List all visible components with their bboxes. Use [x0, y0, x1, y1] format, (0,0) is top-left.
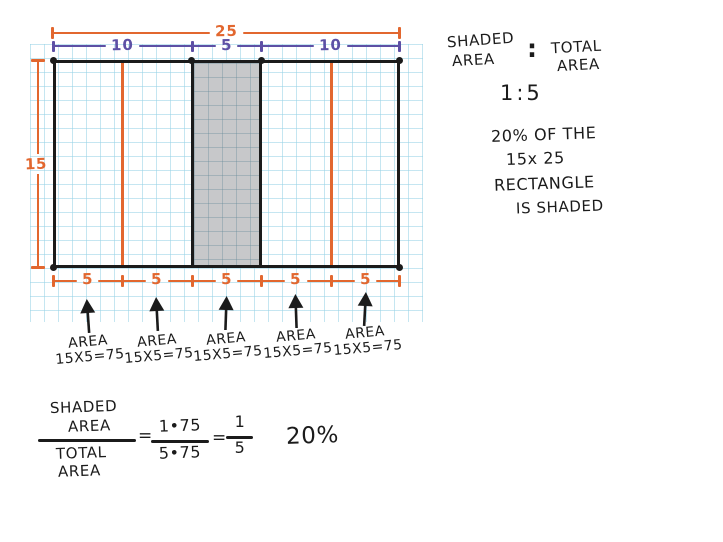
- dimension-label-10: 10: [106, 37, 139, 53]
- dimension-cap: [31, 266, 45, 269]
- dimension-tick: [121, 275, 124, 287]
- dimension-tick: [398, 27, 401, 39]
- note-line-2: 15x 25: [506, 150, 565, 169]
- equation-result-percent: 20%: [286, 423, 340, 449]
- note-line-4: IS SHADED: [516, 198, 604, 217]
- dimension-label-15: 15: [25, 153, 48, 174]
- equation-numerator-shaded: SHADED: [50, 399, 118, 417]
- dimension-label-5: 5: [216, 37, 238, 52]
- up-arrow-icon: [284, 294, 307, 330]
- equals-sign: =: [138, 428, 153, 446]
- ratio-heading-area-right: AREA: [557, 57, 601, 75]
- dimension-segment: [347, 45, 400, 47]
- dimension-segment: [53, 280, 77, 282]
- dimension-segment: [237, 280, 261, 282]
- dimension-tick: [398, 275, 401, 287]
- strip-divider-line-2: [330, 63, 333, 265]
- dimension-segment: [307, 280, 331, 282]
- strip-divider-line-1: [121, 63, 124, 265]
- dimension-tick: [260, 275, 263, 287]
- dimension-label-10: 10: [314, 37, 347, 53]
- shaded-middle-strip: [191, 60, 262, 268]
- corner-dot: [396, 57, 403, 64]
- dimension-tick: [191, 41, 194, 52]
- dimension-segment: [331, 280, 355, 282]
- dimension-tick: [330, 275, 333, 287]
- dimension-segment: [243, 32, 400, 34]
- dimension-line-strip-5: 5: [331, 274, 400, 287]
- dimension-tick: [52, 41, 55, 52]
- equation-denominator-total: TOTAL: [56, 445, 107, 463]
- up-arrow-icon: [76, 298, 100, 334]
- equation-denominator-area: AREA: [58, 463, 101, 480]
- note-line-1: 20% OF THE: [491, 125, 597, 145]
- corner-dot: [50, 57, 57, 64]
- dimension-segment: [53, 32, 210, 34]
- dimension-segment: [376, 280, 400, 282]
- up-arrow-icon: [214, 296, 237, 332]
- dimension-line-strip-3: 5: [192, 274, 261, 287]
- fraction2-denominator: 5•75: [153, 444, 208, 463]
- dimension-label-5: 5: [285, 272, 307, 287]
- dimension-segment: [168, 280, 192, 282]
- up-arrow-icon: [145, 296, 169, 332]
- up-arrow-icon: [353, 291, 377, 327]
- equals-sign: =: [212, 430, 227, 448]
- fraction3-denominator: 5: [227, 440, 253, 457]
- fraction-bar: [38, 439, 136, 442]
- ratio-colon: :: [527, 36, 538, 62]
- corner-dot: [396, 264, 403, 271]
- dimension-cap: [31, 59, 45, 62]
- corner-dot: [258, 57, 265, 64]
- dimension-segment: [261, 45, 314, 47]
- dimension-label-5: 5: [146, 272, 168, 287]
- dimension-line-strip-2: 5: [122, 274, 192, 287]
- dimension-segment: [192, 45, 216, 47]
- dimension-label-5: 5: [77, 272, 99, 287]
- dimension-tick: [52, 275, 55, 287]
- dimension-line-right-10: 10: [261, 40, 400, 52]
- corner-dot: [50, 264, 57, 271]
- dimension-segment: [98, 280, 122, 282]
- dimension-segment: [139, 45, 192, 47]
- corner-dot: [188, 57, 195, 64]
- ratio-heading-shaded: SHADED: [447, 31, 515, 51]
- dimension-line-strip-4: 5: [261, 274, 331, 287]
- dimension-line-strip-1: 5: [53, 274, 122, 287]
- dimension-tick: [191, 275, 194, 287]
- dimension-segment: [237, 45, 261, 47]
- dimension-line-middle-5: 5: [192, 40, 261, 52]
- note-line-3: RECTANGLE: [494, 174, 595, 194]
- ratio-heading-area-left: AREA: [452, 52, 496, 70]
- equation-numerator-area: AREA: [68, 418, 111, 435]
- dimension-segment: [53, 45, 106, 47]
- dimension-segment: [261, 280, 285, 282]
- dimension-line-left-10: 10: [53, 40, 192, 52]
- fraction2-numerator: 1•75: [153, 417, 208, 436]
- dimension-segment: [122, 280, 146, 282]
- dimension-segment: [192, 280, 216, 282]
- dimension-segment: [37, 61, 39, 154]
- dimension-tick: [398, 41, 401, 52]
- dimension-label-5: 5: [355, 272, 377, 287]
- dimension-tick: [260, 41, 263, 52]
- dimension-line-height: 15: [31, 61, 45, 267]
- dimension-segment: [37, 174, 39, 267]
- ratio-value: 1:5: [500, 82, 543, 104]
- worksheet-canvas: 25 10 5 10 15 5 5 5: [0, 0, 723, 542]
- fraction3-numerator: 1: [227, 414, 253, 431]
- dimension-tick: [51, 27, 54, 39]
- dimension-label-5: 5: [216, 272, 238, 287]
